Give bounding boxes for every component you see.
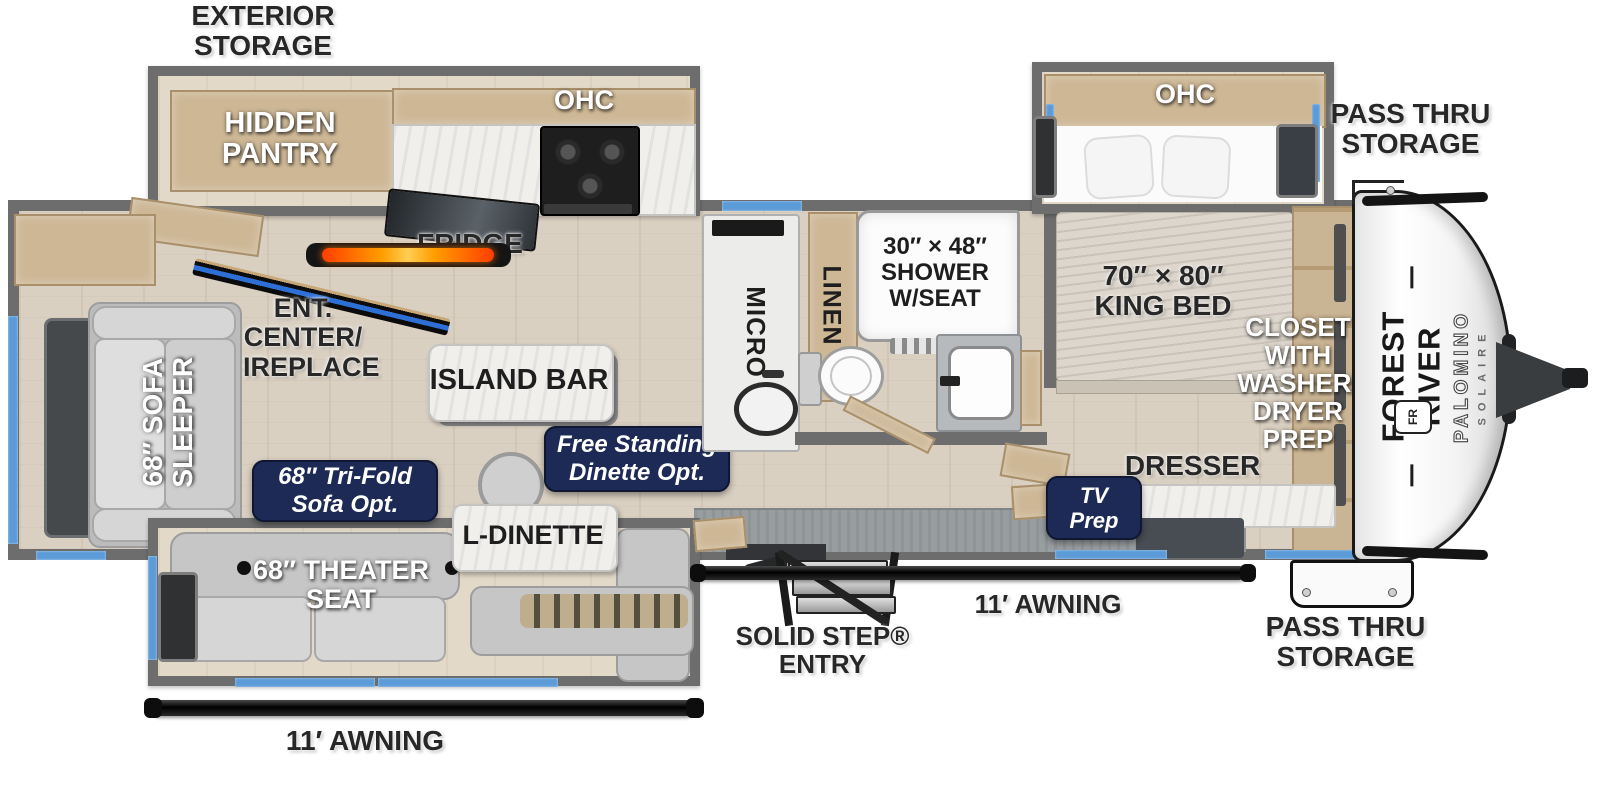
solid-step-entry-label: SOLID STEP® ENTRY — [725, 616, 920, 684]
theater-seat-label: 68″ THEATER SEAT — [216, 548, 466, 622]
rear-awning-bar — [152, 700, 694, 716]
living-slide-side-strip — [148, 556, 157, 660]
brand-rule-left — [1410, 464, 1413, 486]
brand-line: PALOMINO — [1452, 266, 1474, 486]
awning-front-label: 11′ AWNING — [938, 588, 1158, 620]
sofa-sleeper-label: 68″ SOFA SLEEPER — [138, 357, 198, 488]
toilet-seat — [830, 356, 872, 396]
front-awning-cap-right — [1240, 564, 1256, 582]
bedroom-ohc-label: OHC — [1140, 80, 1230, 110]
tri-fold-sofa-option-badge: 68″ Tri-Fold Sofa Opt. — [252, 460, 438, 522]
fireplace-flame-icon — [322, 248, 494, 262]
island-bar-label: ISLAND BAR — [428, 344, 610, 418]
living-slide-bottom-strip-1 — [235, 678, 375, 687]
bath-top-window-strip — [722, 201, 802, 211]
bedroom-window-left — [1033, 116, 1057, 198]
brand-rule-right — [1410, 266, 1413, 288]
kitchen-sink-icon — [734, 382, 798, 436]
bath-mirror-cabinet — [1020, 350, 1042, 426]
exterior-storage-label: EXTERIOR STORAGE — [163, 2, 363, 60]
kitchen-ohc-label: OHC — [528, 86, 640, 116]
pass-thru-top-label: PASS THRU STORAGE — [1328, 98, 1493, 160]
brand-logo-icon: FR — [1394, 400, 1432, 434]
front-awning-cap-left — [690, 564, 706, 582]
pass-thru-screw-right — [1388, 588, 1397, 597]
kitchen-faucet-icon — [762, 370, 784, 378]
living-slide-bottom-strip-2 — [378, 678, 558, 687]
floorplan-canvas: HIDDEN PANTRY OHC FRIDGE ENT. CENTER/ FI… — [0, 0, 1600, 805]
sofa-label-wrap: 68″ SOFA SLEEPER — [83, 330, 253, 515]
shower-label: 30″ × 48″ SHOWER W/SEAT — [858, 214, 1012, 332]
front-cap-branding: FOREST RIVER PALOMINO SOLAIRE — [1352, 192, 1512, 560]
closet-door-slot-1 — [1334, 224, 1346, 302]
micro-label: MICRO — [742, 286, 770, 378]
pillow-right — [1160, 134, 1231, 199]
l-dinette-label: L-DINETTE — [452, 504, 614, 568]
pass-thru-screw-left — [1302, 588, 1311, 597]
rear-awning-cap-right — [686, 698, 704, 718]
stove-icon — [540, 126, 640, 216]
rear-overhead-cabinet — [14, 214, 156, 286]
bedroom-window-right — [1276, 124, 1318, 198]
pillow-left — [1083, 134, 1155, 201]
linen-label: LINEN — [818, 265, 845, 345]
pass-thru-leader-v — [1352, 180, 1355, 204]
awning-rear-label: 11′ AWNING — [255, 724, 475, 758]
microwave-icon — [712, 220, 784, 236]
front-bottom-window-strip-1 — [1055, 550, 1167, 559]
pass-thru-top-screw — [1386, 186, 1395, 195]
stove-vent — [544, 204, 632, 214]
tv-prep-badge: TV Prep — [1046, 476, 1142, 540]
bath-faucet-icon — [940, 376, 960, 386]
pass-thru-bottom-label: PASS THRU STORAGE — [1258, 610, 1433, 674]
brand-logo-text: FR — [1406, 409, 1420, 425]
hitch-coupler — [1562, 368, 1588, 388]
rear-awning-cap-left — [144, 698, 162, 718]
living-slide-window — [158, 572, 198, 662]
closet-label: CLOSET WITH WASHER/ DRYER PREP — [1236, 300, 1360, 466]
rear-window-strip — [8, 316, 18, 544]
pass-thru-leader-h — [1352, 180, 1404, 183]
pass-thru-door — [1290, 560, 1414, 608]
front-awning-bar — [696, 566, 1246, 580]
brand-maker-row: FOREST RIVER — [1376, 266, 1448, 486]
door-side-counter — [693, 516, 748, 552]
hidden-pantry-label: HIDDEN PANTRY — [180, 96, 380, 182]
dinette-cushion-stripes — [520, 594, 688, 628]
brand-model: SOLAIRE — [1477, 266, 1489, 486]
rear-bottom-window-strip — [36, 551, 106, 560]
